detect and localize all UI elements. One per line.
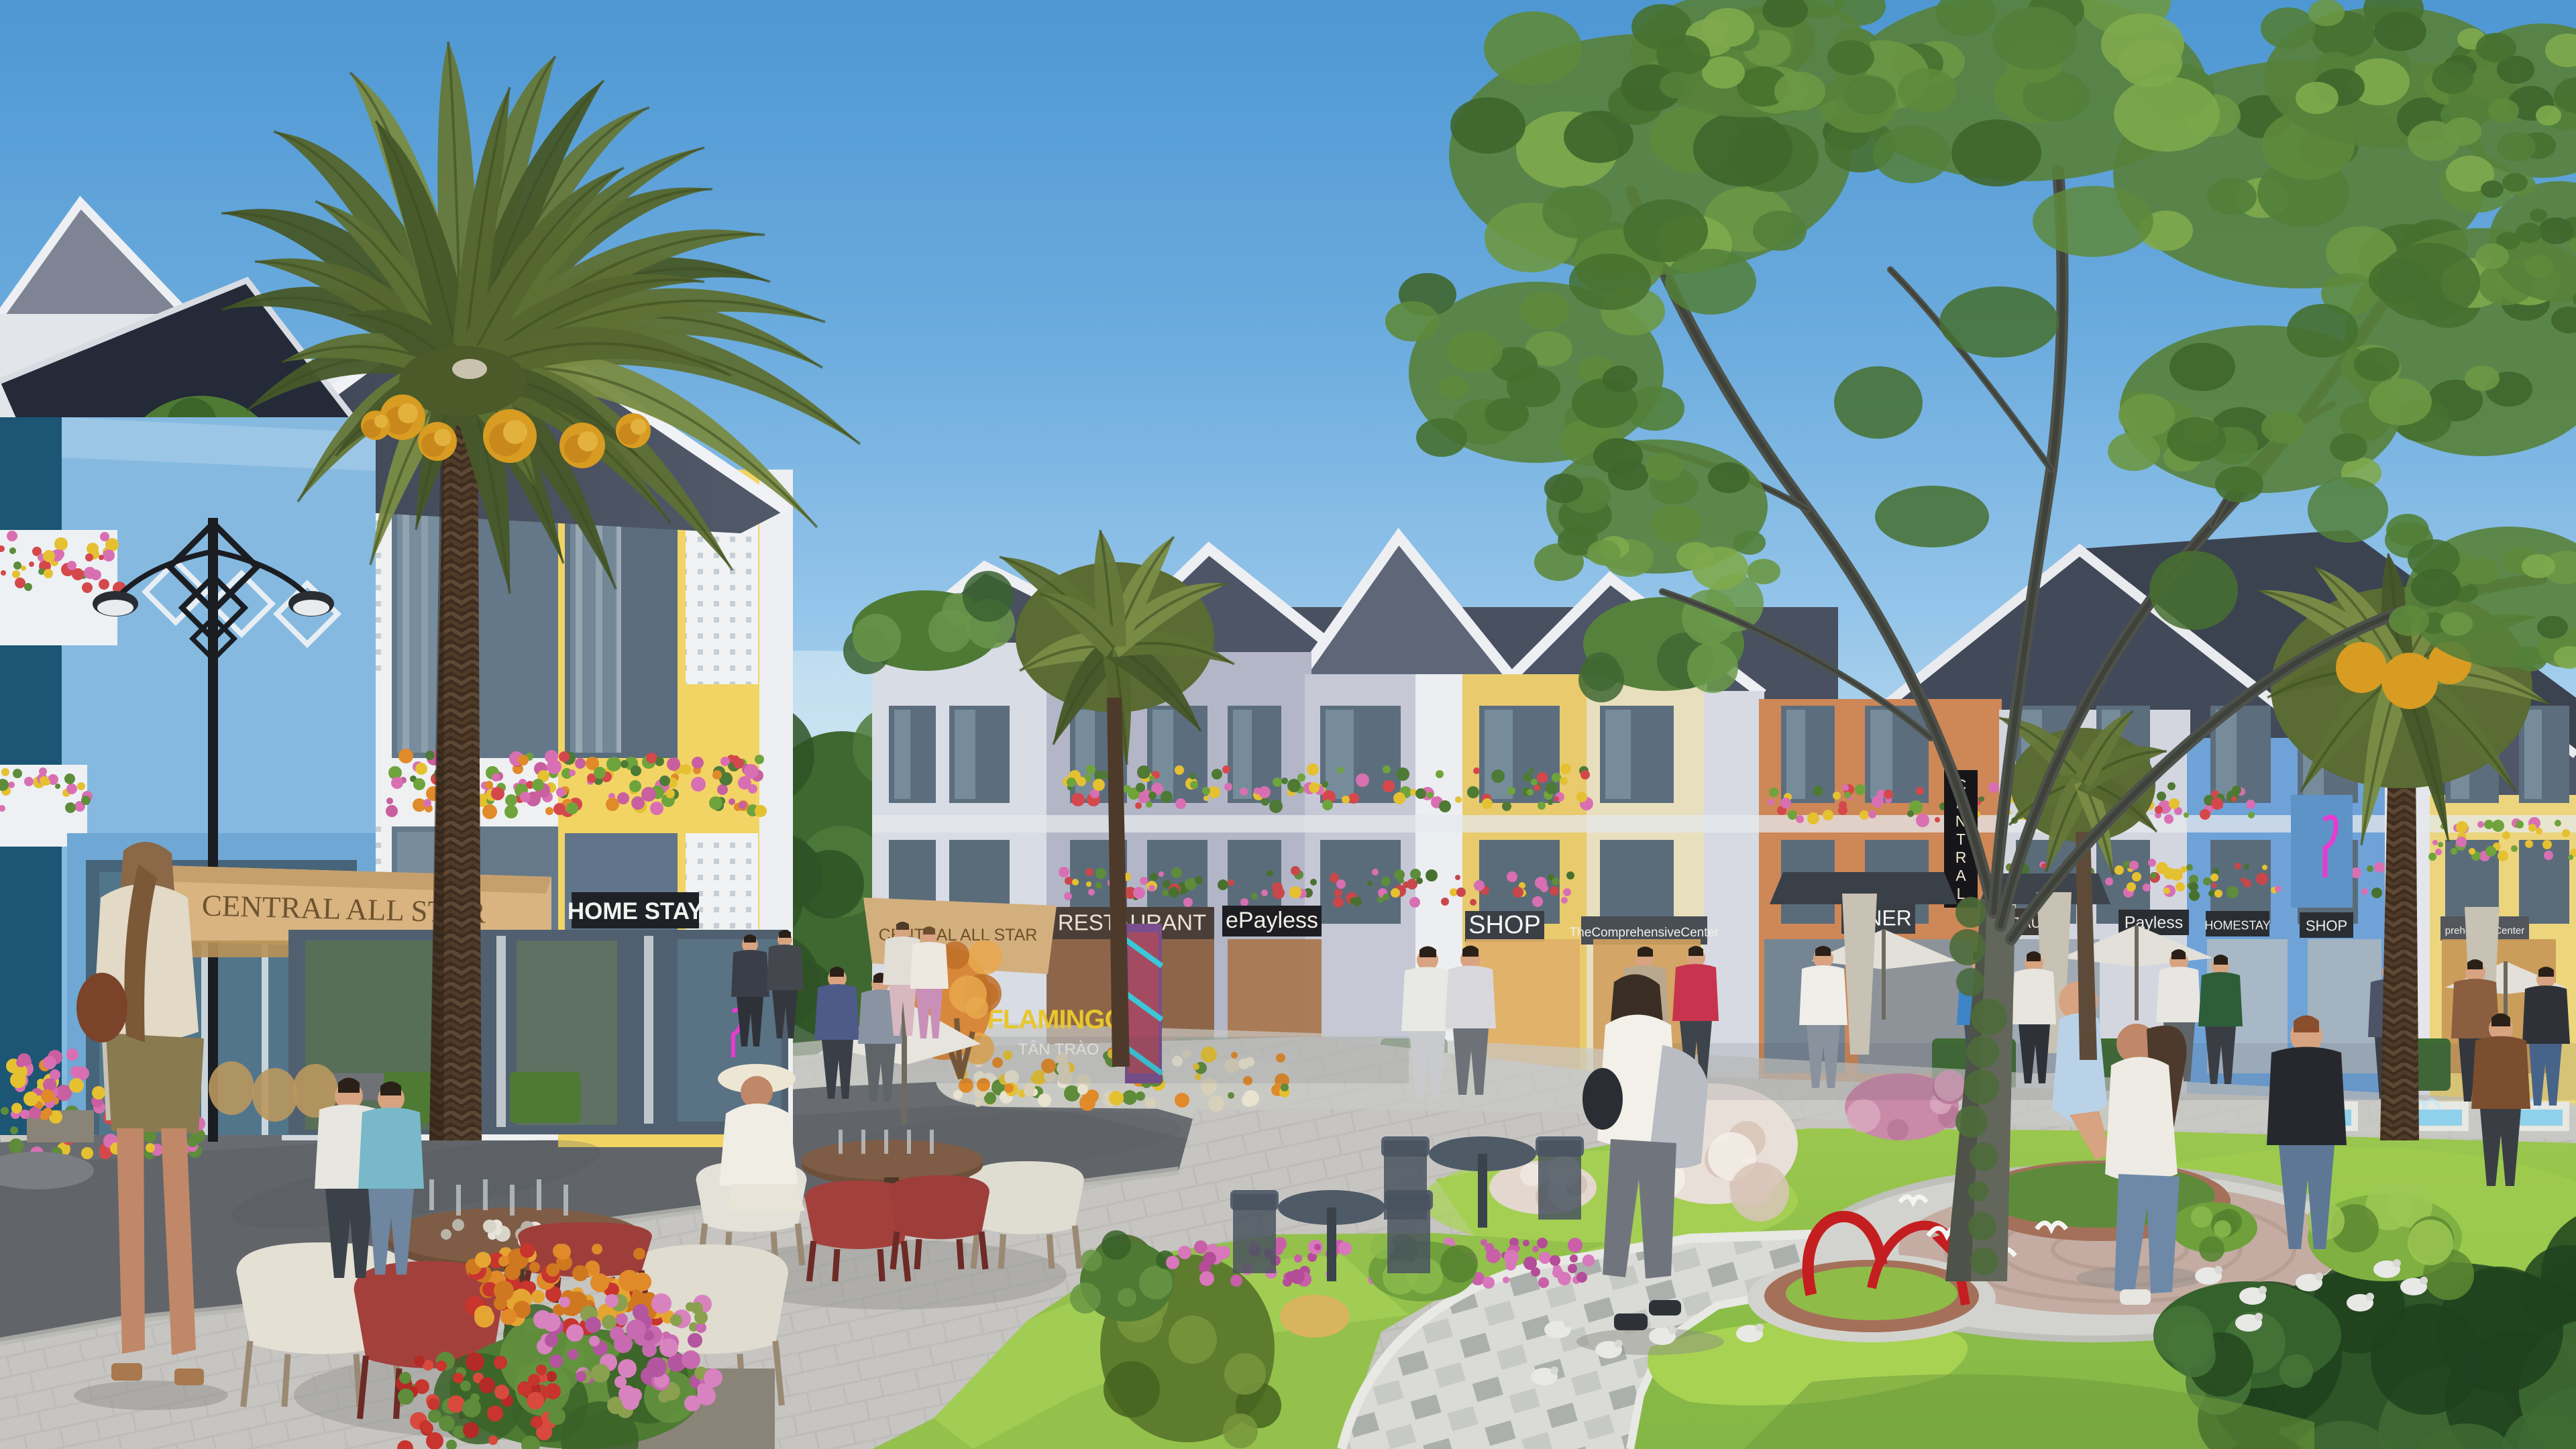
svg-text:TheComprehensiveCenter: TheComprehensiveCenter <box>1570 926 1720 940</box>
svg-text:R: R <box>1955 849 1967 866</box>
svg-text:ePayless: ePayless <box>1226 908 1318 933</box>
svg-text:HOMESTAY: HOMESTAY <box>2204 918 2270 932</box>
svg-text:A: A <box>1955 867 1966 884</box>
svg-text:SHOP: SHOP <box>1468 911 1541 939</box>
svg-text:FLAMINGO: FLAMINGO <box>987 1005 1124 1034</box>
svg-text:SHOP: SHOP <box>2306 917 2347 934</box>
svg-text:T: T <box>1956 830 1966 848</box>
svg-text:HOME STAY: HOME STAY <box>568 898 703 924</box>
